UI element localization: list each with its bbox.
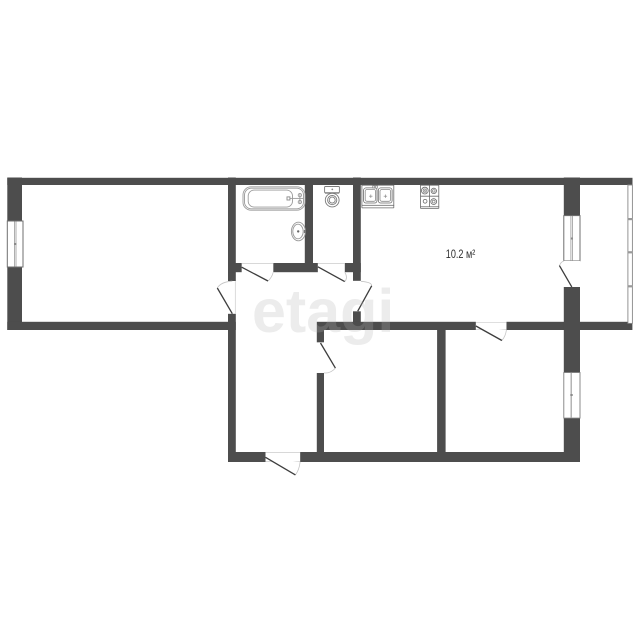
svg-text:10.2 м²: 10.2 м² xyxy=(446,247,476,261)
svg-text:etagi: etagi xyxy=(252,277,394,345)
